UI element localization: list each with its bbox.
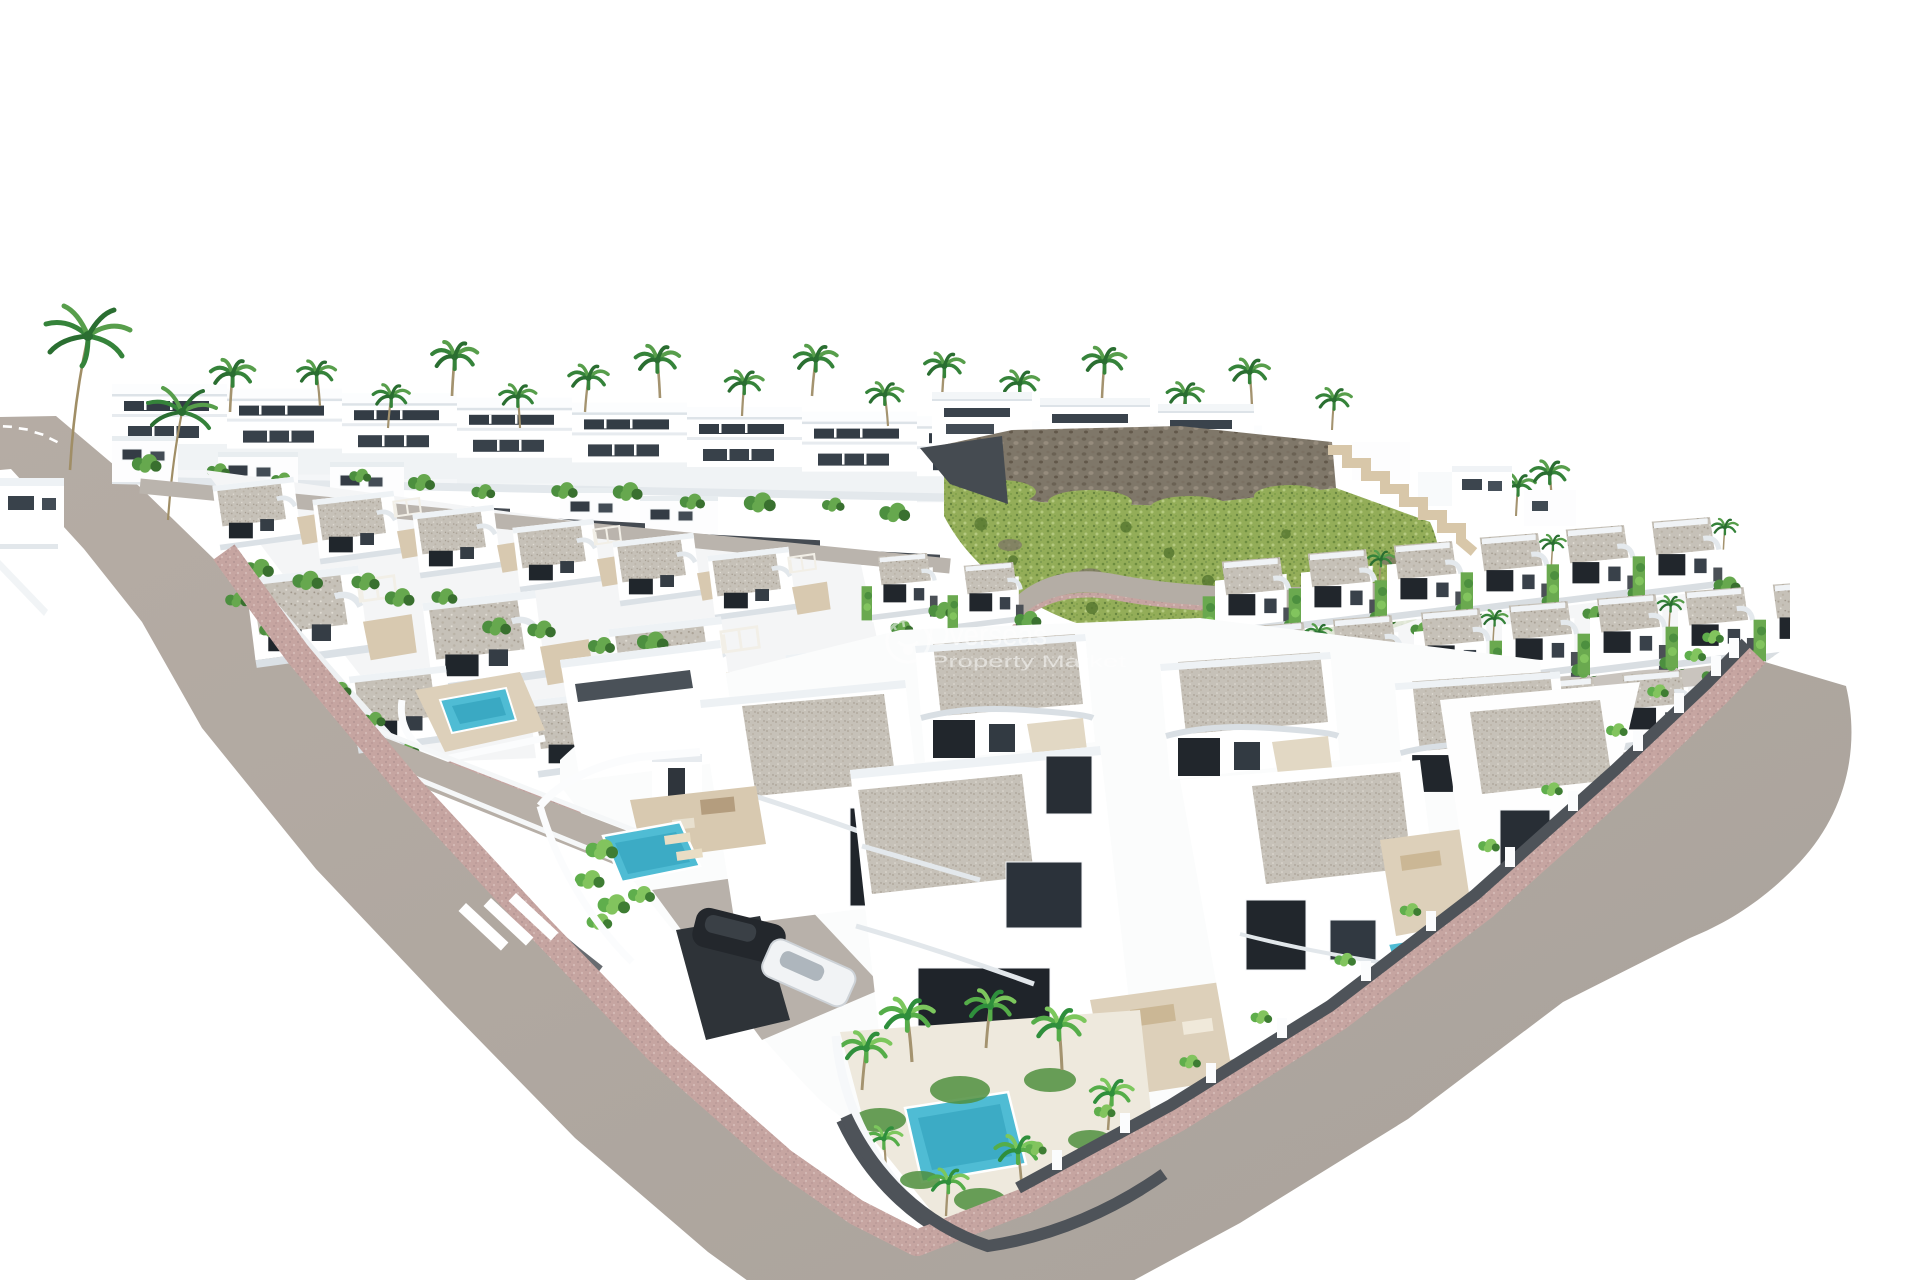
svg-text:Property Market: Property Market: [930, 652, 1126, 671]
svg-text:Overseas: Overseas: [928, 617, 1047, 652]
